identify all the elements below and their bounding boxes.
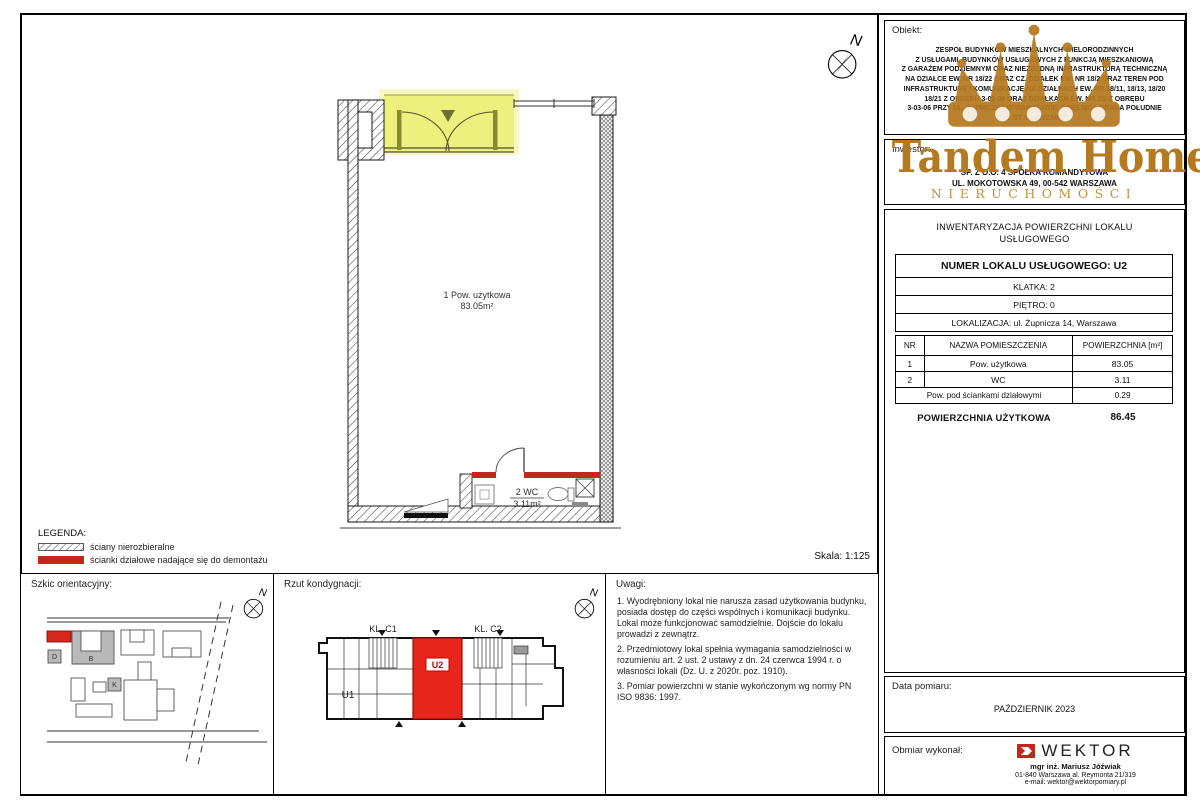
scale-label: Skala: 1:125 xyxy=(742,551,870,562)
inventory-heading: INWENTARYZACJA POWIERZCHNI LOKALU USŁUGO… xyxy=(885,221,1184,245)
room1-label: 1 Pow. użytkowa xyxy=(443,290,510,300)
total-area-label: POWIERZCHNIA UŻYTKOWA xyxy=(895,412,1073,423)
floor-row: PIĘTRO: 0 xyxy=(896,296,1173,314)
surveyor-box: Obmiar wykonał: WEKTOR mgr inż. Mariusz … xyxy=(884,736,1185,795)
unit-info-table: NUMER LOKALU USŁUGOWEGO: U2 KLATKA: 2 PI… xyxy=(895,254,1173,332)
total-area-row: POWIERZCHNIA UŻYTKOWA 86.45 xyxy=(895,406,1173,428)
unit-u2-label: U2 xyxy=(432,660,444,670)
notes-title: Uwagi: xyxy=(616,579,646,590)
note-1: 1. Wyodrębniony lokal nie narusza zasad … xyxy=(617,596,868,640)
surveyor-address: 01-840 Warszawa al. Reymonta 21/319 xyxy=(973,772,1178,779)
hatch-swatch xyxy=(38,543,84,551)
site-sketch-panel: Szkic orientacyjny: xyxy=(20,573,275,795)
partition-row: Pow. pod ściankami działowymi 0.29 xyxy=(896,388,1173,404)
svg-text:N: N xyxy=(589,586,599,599)
measurement-date-label: Data pomiaru: xyxy=(892,681,952,692)
surveyor-person: mgr inż. Mariusz Jóźwiak xyxy=(973,762,1178,771)
red-swatch xyxy=(38,556,84,564)
floor-plan-panel: 1 Pow. użytkowa 83.05m² 2 WC 3.11m² N LE… xyxy=(22,15,877,573)
wektor-logo-icon xyxy=(1017,744,1035,758)
site-sketch-drawing: D B K N xyxy=(21,574,274,794)
svg-text:U1: U1 xyxy=(342,690,355,701)
svg-text:B: B xyxy=(89,656,94,663)
table-row: 1 Pow. użytkowa 83.05 xyxy=(896,356,1173,372)
note-2: 2. Przedmiotowy lokal spełnia wymagania … xyxy=(617,644,868,677)
surveyor-email: e-mail: wektor@wektorpomiary.pl xyxy=(973,779,1178,786)
room2-area: 3.11m² xyxy=(513,499,540,509)
total-area-value: 86.45 xyxy=(1073,412,1173,423)
investor-label: Inwestor: xyxy=(892,144,931,155)
room2-label: 2 WC xyxy=(516,487,539,497)
room1-area: 83.05m² xyxy=(460,301,493,311)
drawing-sheet: 1 Pow. użytkowa 83.05m² 2 WC 3.11m² N LE… xyxy=(0,0,1200,808)
demolition-wall xyxy=(472,472,496,478)
svg-text:D: D xyxy=(52,654,57,661)
notes-text: 1. Wyodrębniony lokal nie narusza zasad … xyxy=(617,596,868,707)
investor-description: SP. Z O.O. 4 SPÓŁKA KOMANDYTOWA UL. MOKO… xyxy=(887,167,1182,189)
compass-icon: N xyxy=(575,586,599,618)
legend-item-label: ścianki działowe nadające się do demonta… xyxy=(90,555,268,565)
compass-icon: N xyxy=(244,586,268,618)
measurement-date-box: Data pomiaru: PAŹDZIERNIK 2023 xyxy=(884,676,1185,733)
highlighted-unit-u2: U2 xyxy=(413,638,462,719)
compass-icon: N xyxy=(812,25,876,89)
object-box: Obiekt: ZESPÓŁ BUDYNKÓW MIESZKALNYCH WIE… xyxy=(884,20,1185,135)
object-description: ZESPÓŁ BUDYNKÓW MIESZKALNYCH WIELORODZIN… xyxy=(887,46,1182,124)
legend-item: ściany nierozbieralne xyxy=(38,542,268,552)
surveyor-company: WEKTOR xyxy=(1041,741,1133,761)
legend-item-label: ściany nierozbieralne xyxy=(90,542,175,552)
svg-text:K: K xyxy=(112,682,117,689)
legend-title: LEGENDA: xyxy=(38,528,268,539)
staircase-row: KLATKA: 2 xyxy=(896,278,1173,296)
measurement-date-value: PAŹDZIERNIK 2023 xyxy=(885,704,1184,714)
area-table: NR NAZWA POMIESZCZENIA POWIERZCHNIA [m²]… xyxy=(895,335,1173,404)
note-3: 3. Pomiar powierzchni w stanie wykończon… xyxy=(617,681,868,703)
north-label: N xyxy=(849,31,864,50)
location-row: LOKALIZACJA: ul. Żupnicza 14, Warszawa xyxy=(896,314,1173,332)
notes-panel: Uwagi: 1. Wyodrębniony lokal nie narusza… xyxy=(605,573,879,795)
svg-text:KL. C1: KL. C1 xyxy=(369,624,397,634)
surveyor-label: Obmiar wykonał: xyxy=(892,745,963,756)
legend: LEGENDA: ściany nierozbieralne ścianki d… xyxy=(38,528,268,565)
svg-text:N: N xyxy=(258,586,268,599)
storey-plan-panel: Rzut kondygnacji: xyxy=(273,573,608,795)
table-row: 2 WC 3.11 xyxy=(896,372,1173,388)
legend-item: ścianki działowe nadające się do demonta… xyxy=(38,555,268,565)
floor-plan-drawing: 1 Pow. użytkowa 83.05m² 2 WC 3.11m² xyxy=(22,15,877,573)
storey-plan-drawing: U2 KL. C1 KL. C2 U1 N xyxy=(274,574,607,794)
investor-box: Inwestor: SP. Z O.O. 4 SPÓŁKA KOMANDYTOW… xyxy=(884,139,1185,205)
subject-building xyxy=(47,631,71,642)
walls xyxy=(338,97,621,528)
svg-text:KL. C2: KL. C2 xyxy=(474,624,502,634)
object-label: Obiekt: xyxy=(892,25,922,36)
inventory-box: INWENTARYZACJA POWIERZCHNI LOKALU USŁUGO… xyxy=(884,209,1185,673)
site-buildings xyxy=(47,630,201,720)
demolition-wall xyxy=(524,472,600,478)
unit-number-header: NUMER LOKALU USŁUGOWEGO: U2 xyxy=(896,255,1173,278)
surveyor-info: WEKTOR mgr inż. Mariusz Jóźwiak 01-840 W… xyxy=(973,741,1178,786)
